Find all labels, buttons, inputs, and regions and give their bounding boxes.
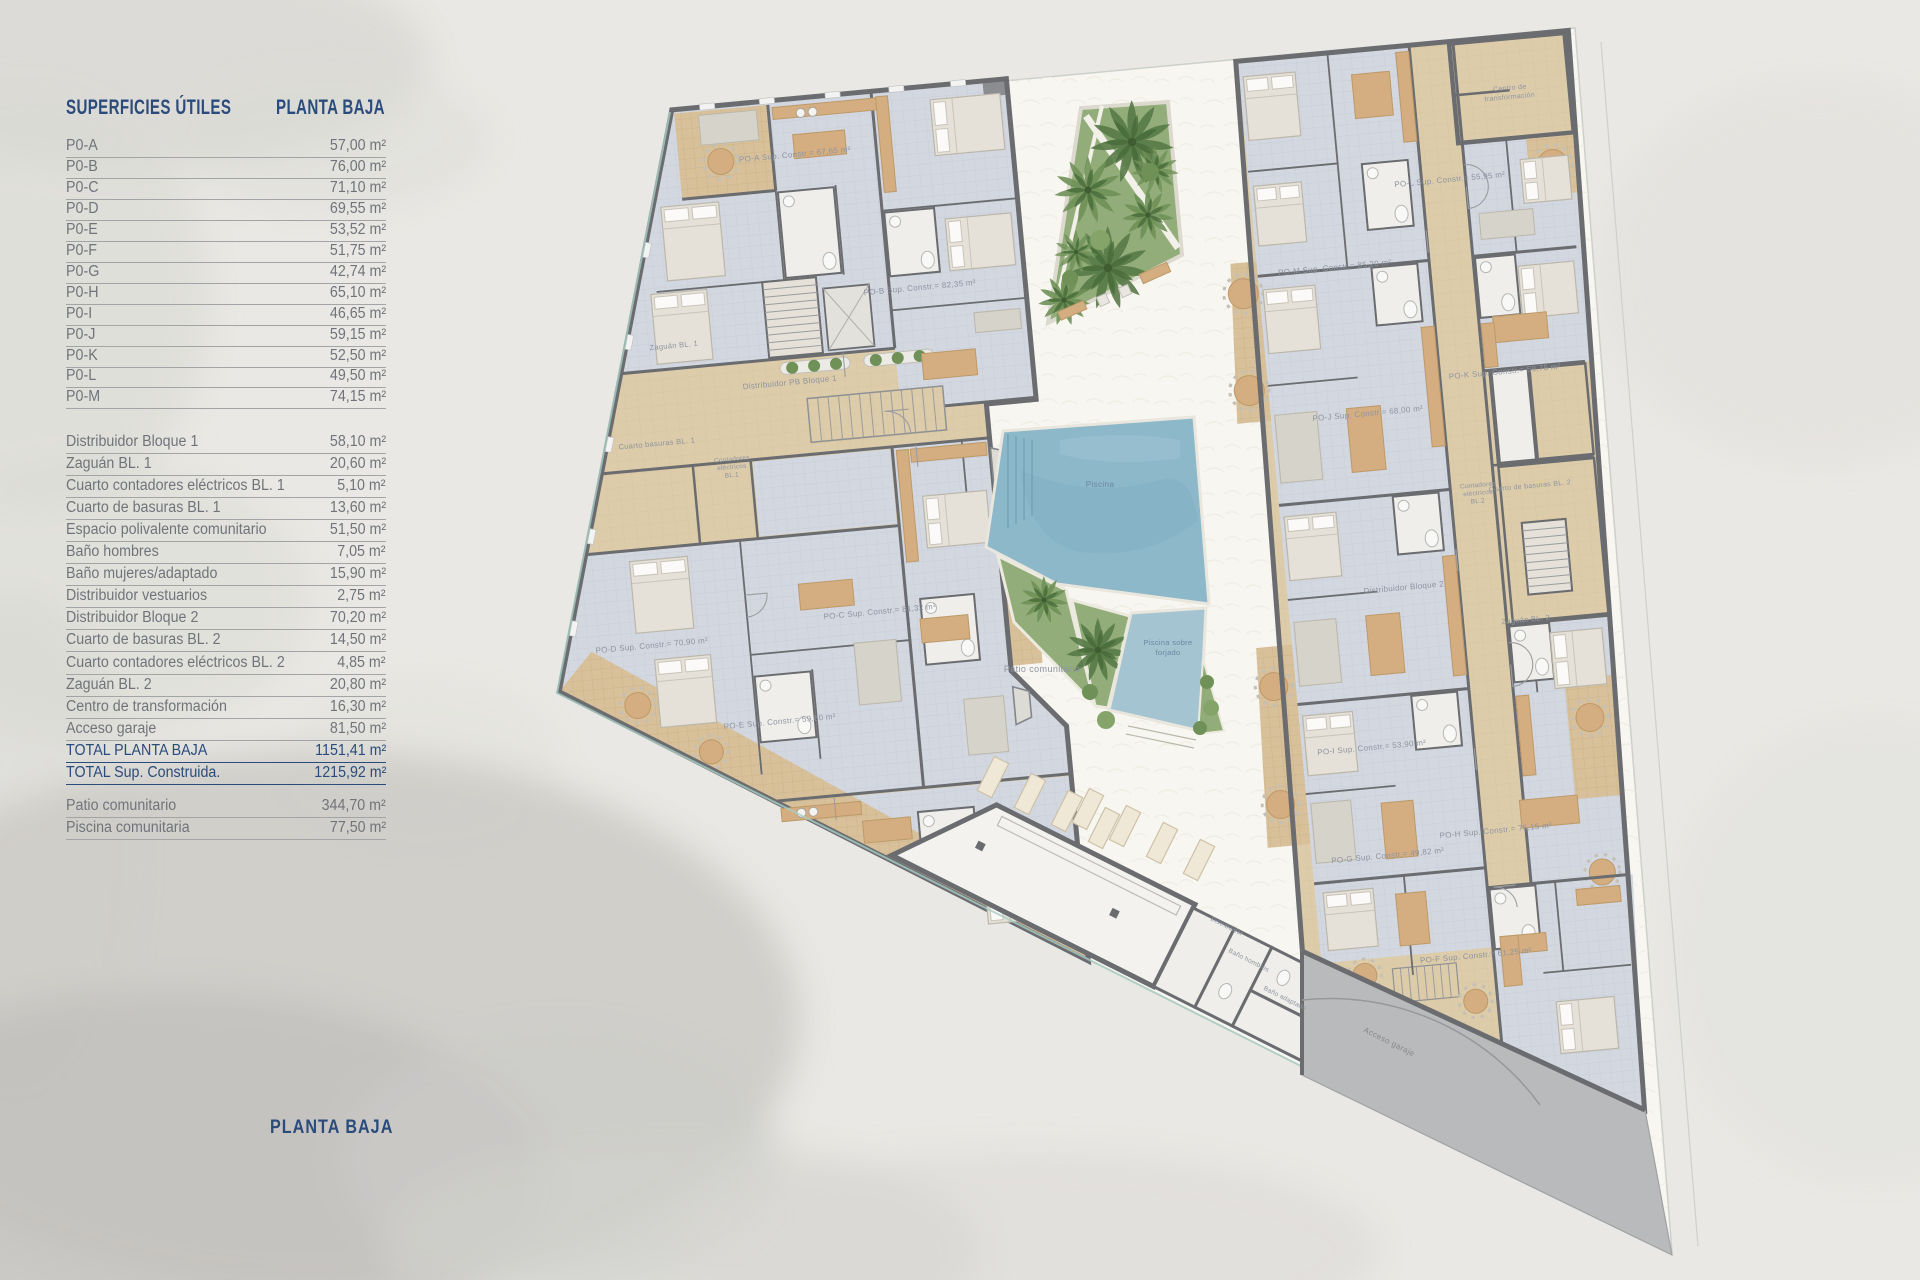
svg-text:BL.2: BL.2 (1470, 497, 1485, 505)
svg-text:BL.1: BL.1 (724, 471, 739, 479)
svg-text:Patio comunitario: Patio comunitario (1004, 664, 1080, 674)
svg-text:Piscina: Piscina (1086, 480, 1115, 489)
svg-text:Piscina sobre: Piscina sobre (1144, 638, 1193, 647)
svg-text:forjado: forjado (1155, 648, 1180, 657)
